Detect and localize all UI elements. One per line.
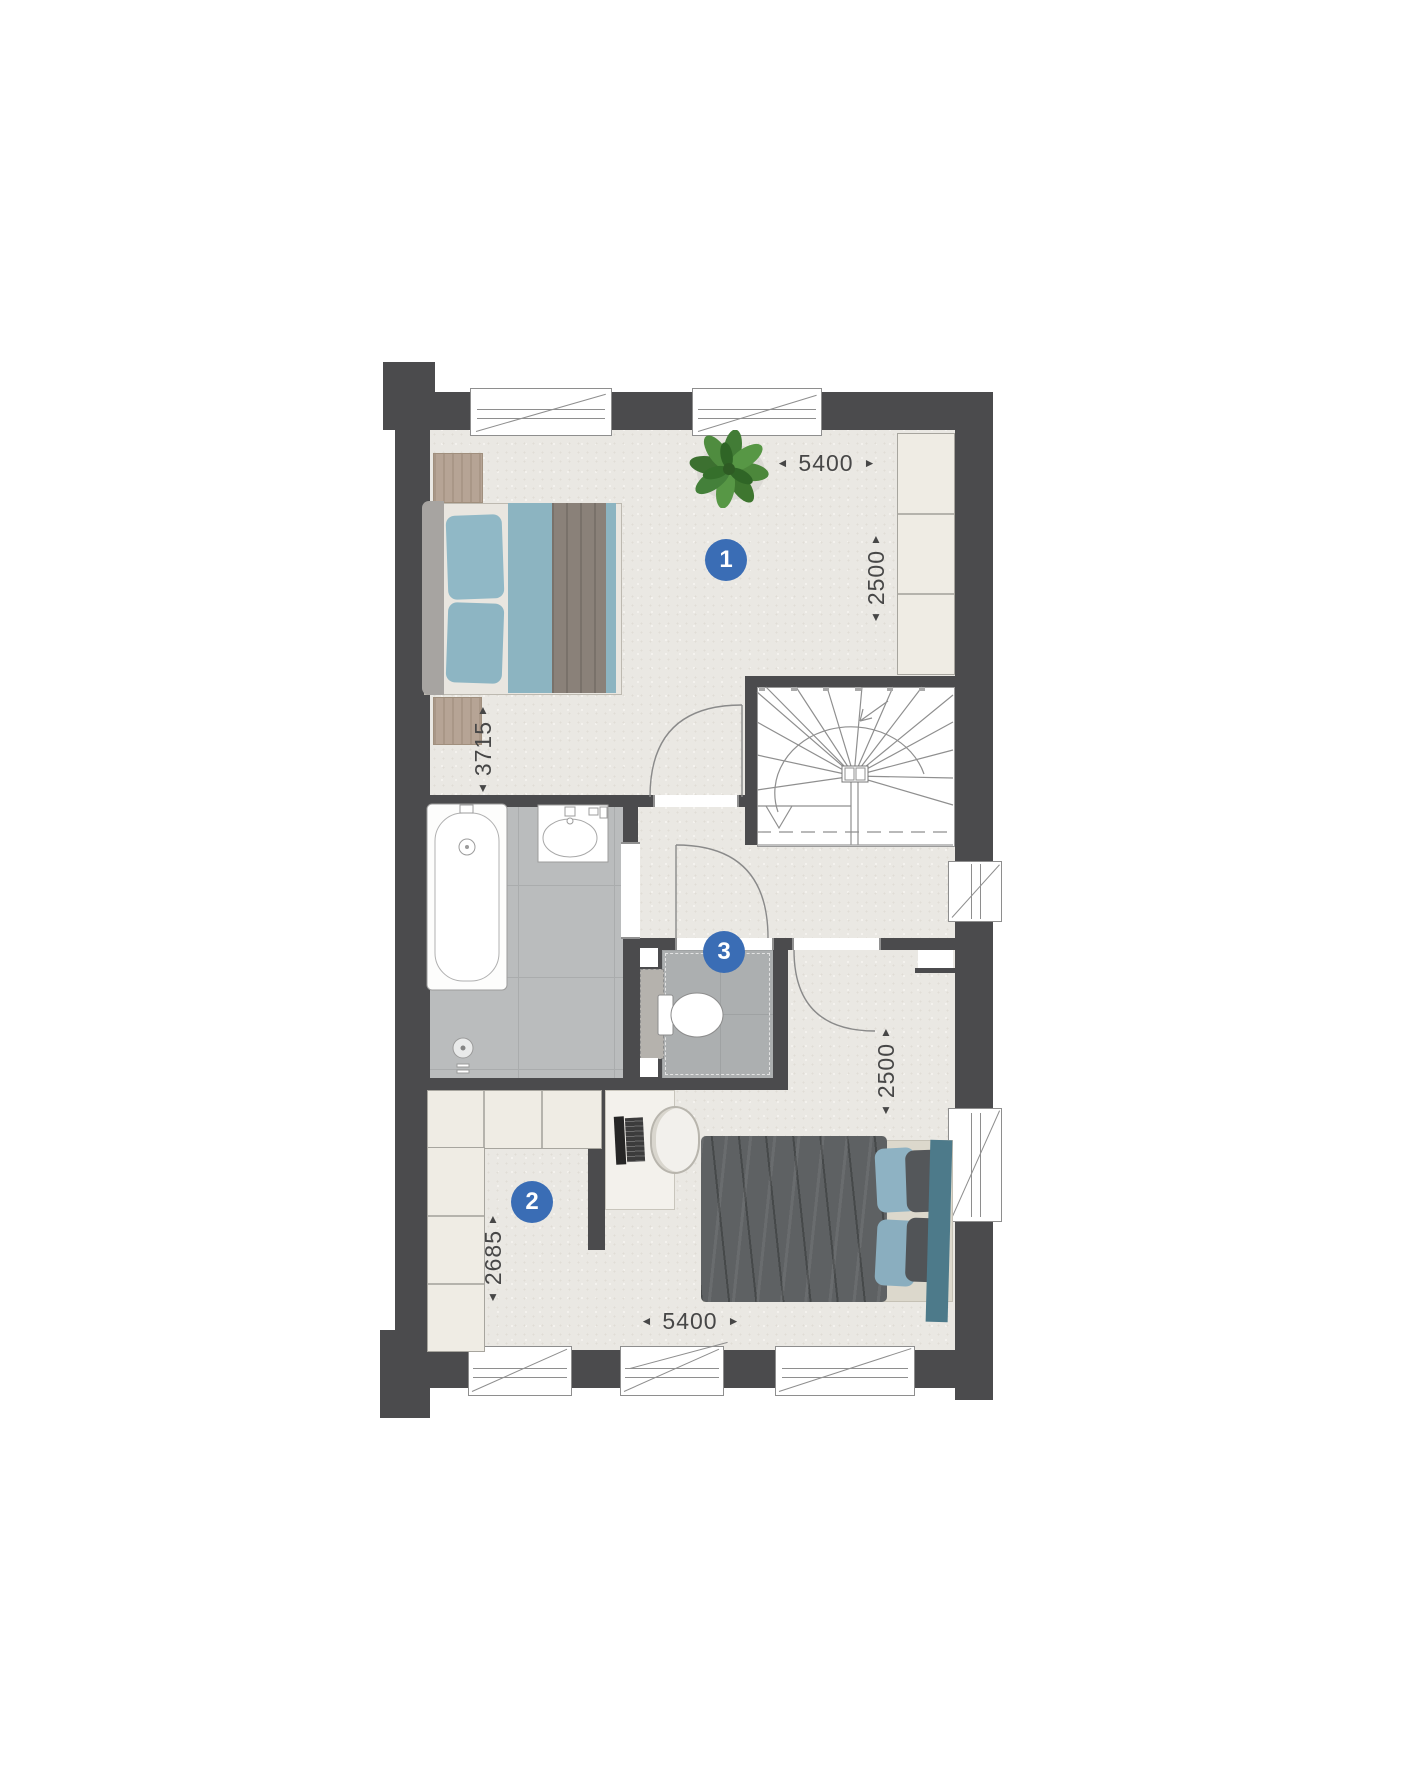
dimension-upper-right-depth: ▲ 2500 ▼ xyxy=(852,534,900,622)
arrow-down-icon: ▼ xyxy=(870,611,882,623)
dimension-bedroom1-depth: ▲ 3715 ▼ xyxy=(459,701,507,797)
arrow-up-icon: ▲ xyxy=(487,1213,499,1225)
bed2-duvet xyxy=(701,1136,887,1302)
double-bed-1 xyxy=(422,501,622,695)
floorplan-canvas: 1 2 3 ◄ 5400 ► ▲ 2500 ▼ ▲ 3715 ▼ ▲ 2685 … xyxy=(0,0,1417,1772)
arrow-up-icon: ▲ xyxy=(880,1026,892,1038)
toilet xyxy=(655,985,727,1045)
laptop xyxy=(614,1115,646,1165)
dimension-bottom-width: ◄ 5400 ► xyxy=(610,1306,770,1336)
arrow-left-icon: ◄ xyxy=(777,457,789,469)
door-swing-arcs xyxy=(0,0,1417,1772)
room-number-badge-bedroom1: 1 xyxy=(705,539,747,581)
dimension-lower-right-depth: ▲ 2500 ▼ xyxy=(862,1025,910,1117)
arrow-down-icon: ▼ xyxy=(477,782,489,794)
bed1-duvet-edge xyxy=(606,503,616,693)
bed1-blanket xyxy=(552,503,608,693)
room-number-badge-bedroom2: 2 xyxy=(511,1181,553,1223)
arrow-down-icon: ▼ xyxy=(880,1104,892,1116)
arrow-up-icon: ▲ xyxy=(477,704,489,716)
double-bed-2 xyxy=(701,1134,953,1324)
toilet-door-arc xyxy=(676,845,768,938)
bathtub xyxy=(426,803,508,991)
wardrobe-bedroom2-top xyxy=(427,1090,602,1149)
dimension-bedroom2-depth: ▲ 2685 ▼ xyxy=(469,1212,517,1304)
bed1-pillow-bottom xyxy=(446,602,505,684)
washbasin xyxy=(537,804,611,864)
bed1-duvet-teal xyxy=(508,503,554,693)
arrow-right-icon: ► xyxy=(864,457,876,469)
office-chair xyxy=(650,1106,700,1174)
bedroom2-door-arc xyxy=(794,950,875,1031)
bedroom1-door-arc xyxy=(650,705,742,797)
room-number-badge-toilet: 3 xyxy=(703,931,745,973)
arrow-right-icon: ► xyxy=(728,1315,740,1327)
shower-drain xyxy=(447,1034,483,1078)
dimension-top-width: ◄ 5400 ► xyxy=(746,448,906,478)
arrow-left-icon: ◄ xyxy=(641,1315,653,1327)
bed1-headboard xyxy=(422,501,444,695)
arrow-up-icon: ▲ xyxy=(870,533,882,545)
bed1-pillow-top xyxy=(446,514,505,600)
nightstand-top xyxy=(433,453,483,503)
arrow-down-icon: ▼ xyxy=(487,1291,499,1303)
